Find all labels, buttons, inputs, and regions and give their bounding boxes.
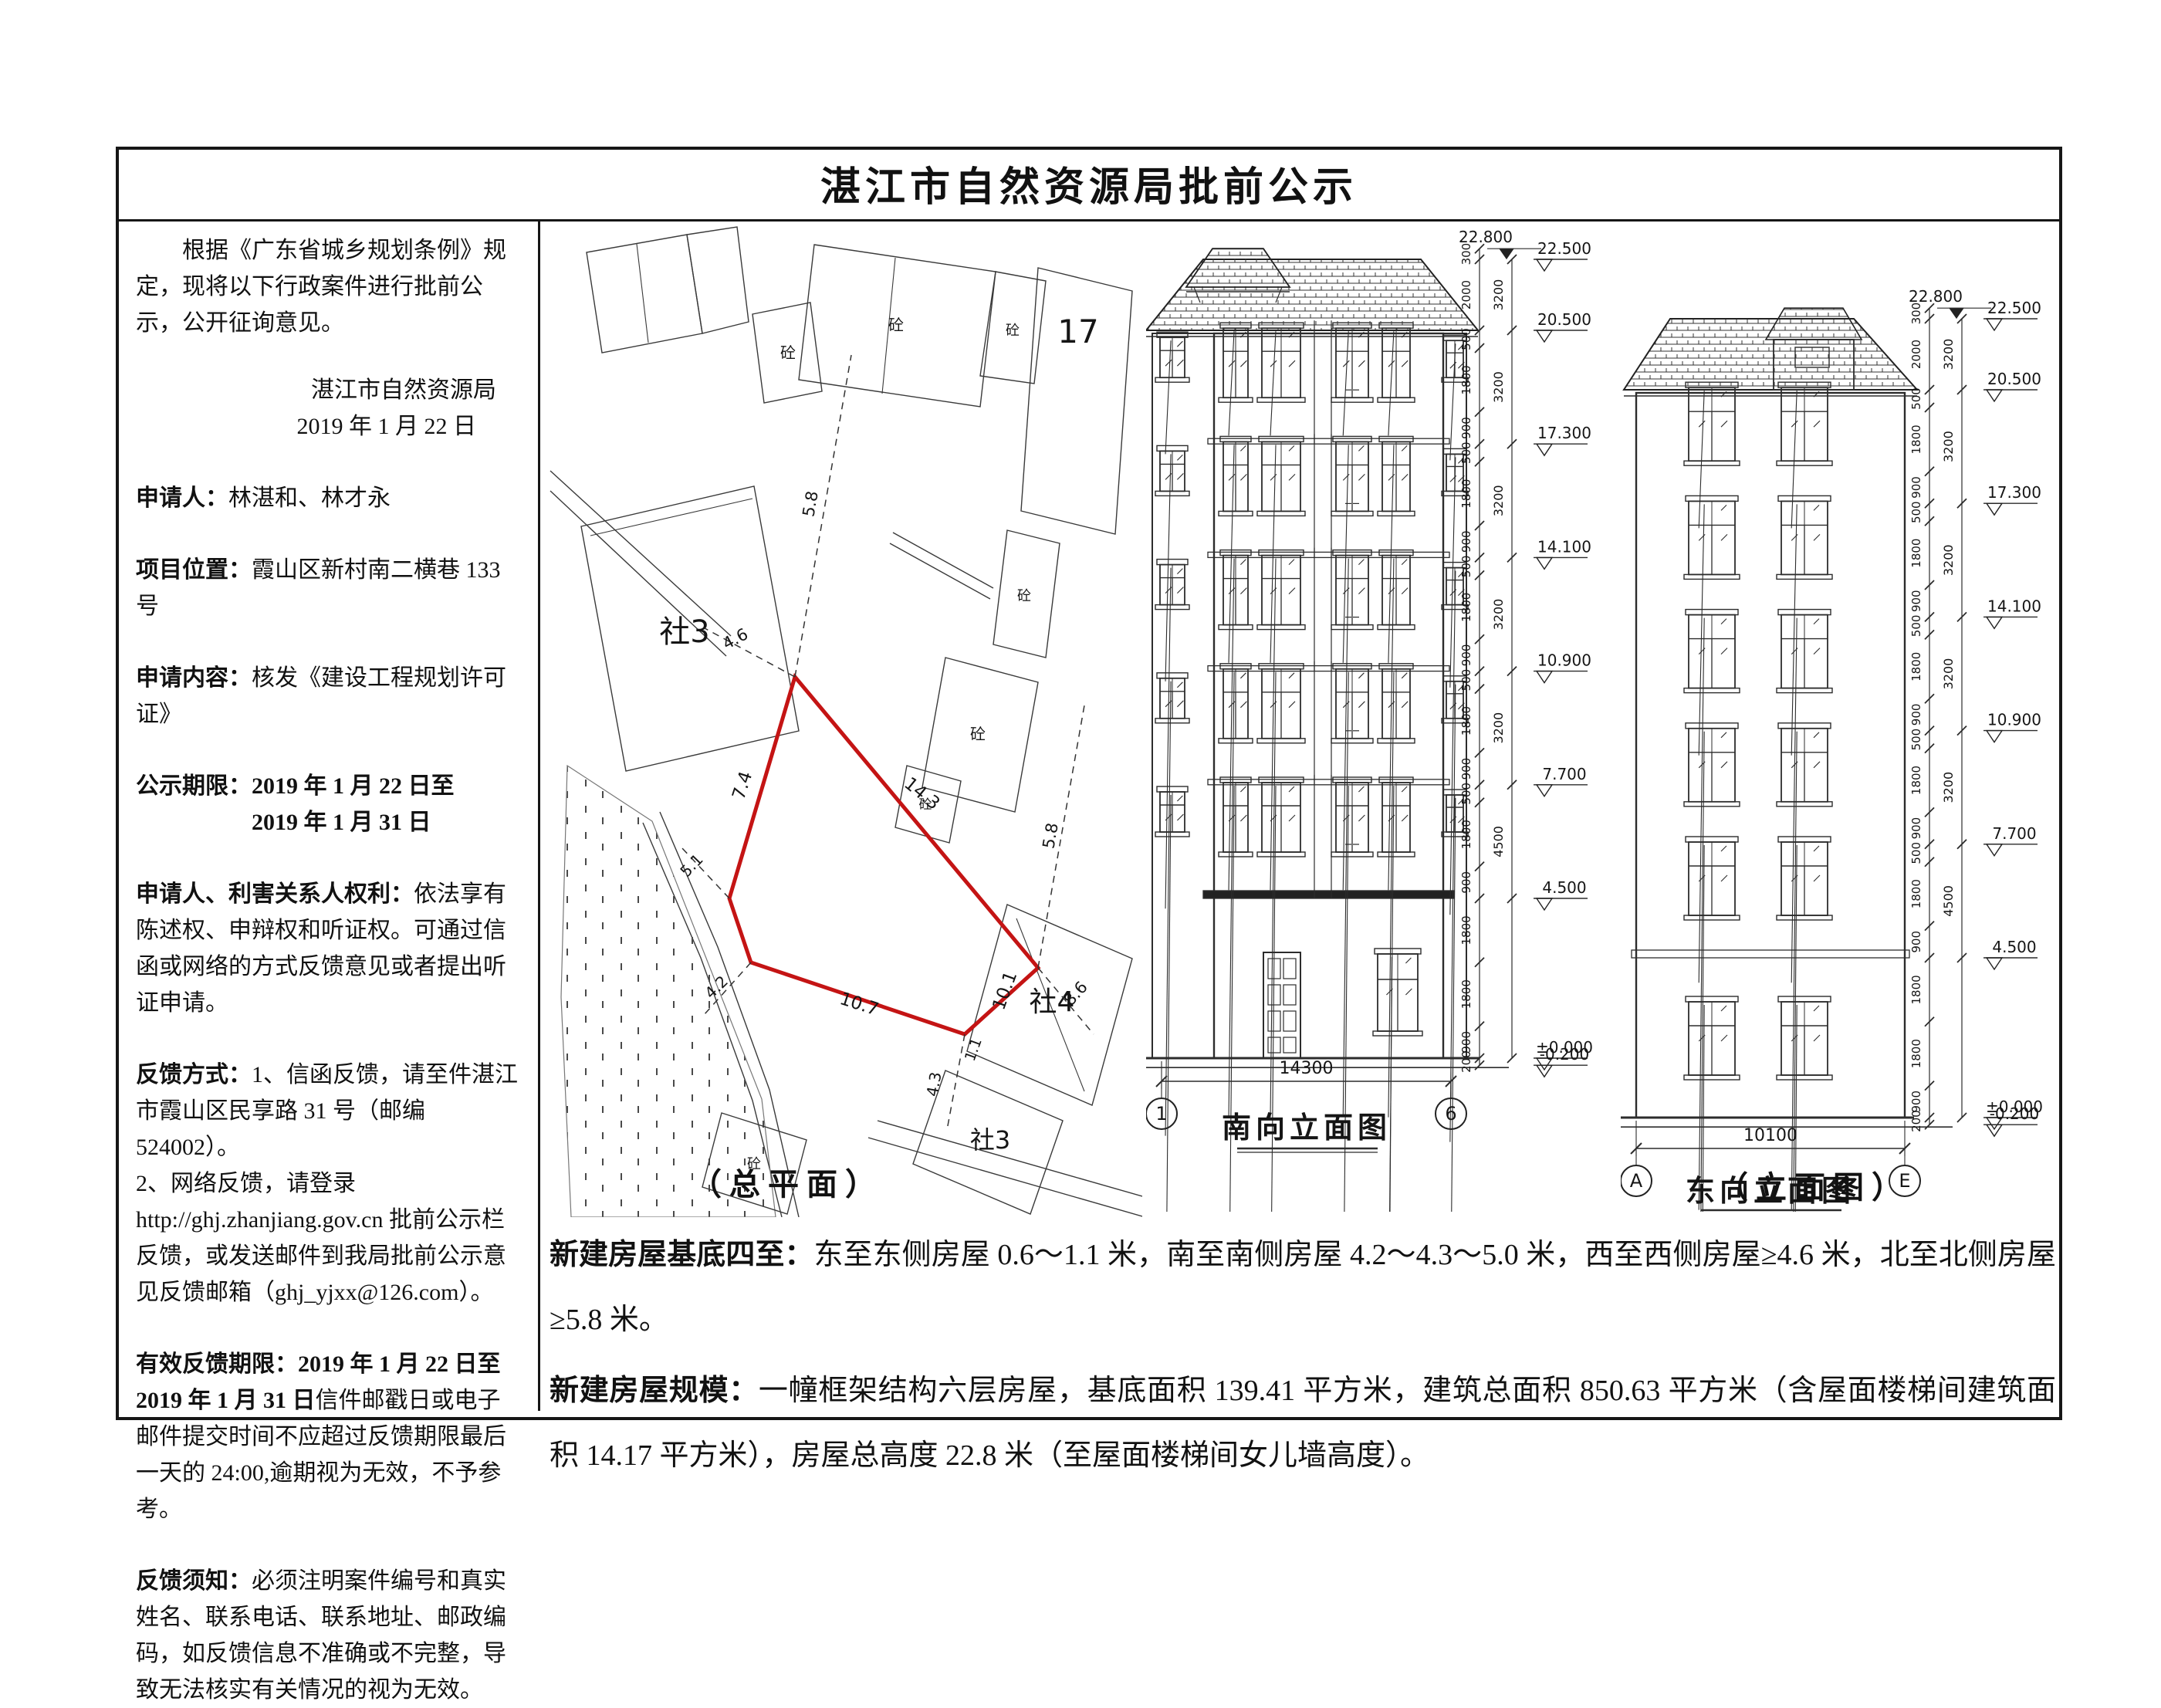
svg-text:3200: 3200 — [1491, 712, 1506, 744]
elevation-marks: 22.50020.50017.30014.10010.9007.7004.500… — [1909, 287, 2043, 1136]
svg-text:500: 500 — [1909, 729, 1923, 751]
feedback-url[interactable]: http://ghj.zhanjiang.gov.cn 批前公示栏反馈，或发送邮… — [136, 1207, 506, 1305]
plot-edge-dimensions: 14.37.410.110.71.1 — [729, 769, 1021, 1063]
svg-text:7.700: 7.700 — [1992, 824, 2036, 843]
svg-text:4.3: 4.3 — [923, 1070, 945, 1098]
svg-text:3200: 3200 — [1491, 485, 1506, 516]
svg-text:1: 1 — [1155, 1103, 1167, 1125]
svg-text:4.500: 4.500 — [1992, 938, 2036, 956]
cadastral-linework: 砼砼砼17砼砼砼社3社4社3砼 — [550, 227, 1142, 1217]
left-panel: 根据《广东省城乡规划条例》规定，现将以下行政案件进行批前公示，公开征询意见。 湛… — [119, 222, 540, 1411]
svg-text:200: 200 — [1909, 1110, 1923, 1132]
svg-text:900: 900 — [1459, 644, 1473, 667]
svg-text:10.900: 10.900 — [1537, 651, 1591, 670]
svg-text:500: 500 — [1909, 387, 1923, 410]
south-ground-floor — [1263, 949, 1422, 1212]
svg-text:-0.200: -0.200 — [1540, 1045, 1589, 1064]
svg-text:2000: 2000 — [1459, 280, 1473, 309]
width-dimension: 14300 — [1156, 1059, 1456, 1089]
svg-text:5.1: 5.1 — [676, 850, 706, 881]
svg-text:500: 500 — [1459, 556, 1473, 578]
svg-text:500: 500 — [1909, 615, 1923, 638]
svg-text:社3: 社3 — [659, 614, 709, 650]
svg-text:1800: 1800 — [1459, 365, 1473, 394]
feedback-paragraph: 反馈方式：1、信函反馈，请至件湛江市霞山区民享路 31 号（邮编 524002）… — [136, 1057, 522, 1311]
issuer-line: 湛江市自然资源局 — [136, 372, 522, 408]
east-elevation-drawing: 3002000500180090050018009005001800900500… — [1621, 255, 2072, 1212]
location-line: 项目位置：霞山区新村南二横巷 133 号 — [136, 552, 522, 624]
intro-paragraph: 根据《广东省城乡规划条例》规定，现将以下行政案件进行批前公示，公开征询意见。 — [136, 232, 522, 341]
east-floor-band — [1632, 950, 1909, 958]
issue-date-line: 2019 年 1 月 22 日 — [136, 408, 522, 445]
svg-text:5.8: 5.8 — [1039, 821, 1061, 850]
svg-text:10.7: 10.7 — [837, 989, 881, 1020]
svg-text:2000: 2000 — [1909, 340, 1923, 369]
svg-text:4500: 4500 — [1941, 885, 1956, 917]
svg-text:3200: 3200 — [1491, 371, 1506, 403]
svg-text:4.6: 4.6 — [719, 624, 751, 653]
svg-text:1800: 1800 — [1909, 539, 1923, 568]
width-dimension: 10100 — [1631, 1121, 1910, 1156]
svg-text:17.300: 17.300 — [1987, 483, 2041, 502]
extents-paragraph: 新建房屋基底四至：东至东侧房屋 0.6～1.1 米，南至南侧房屋 4.2～4.3… — [550, 1223, 2056, 1352]
svg-text:500: 500 — [1459, 441, 1473, 464]
svg-text:900: 900 — [1459, 758, 1473, 780]
svg-text:-0.200: -0.200 — [1990, 1104, 2039, 1123]
scanned-notice-page: { "page": { "title": "湛江市自然资源局批前公示" }, "… — [0, 0, 2161, 1544]
svg-text:22.500: 22.500 — [1987, 299, 2041, 317]
south-roof — [1146, 249, 1478, 337]
svg-text:500: 500 — [1459, 669, 1473, 692]
svg-text:22.800: 22.800 — [1459, 228, 1513, 246]
svg-text:6: 6 — [1445, 1103, 1456, 1125]
svg-text:4500: 4500 — [1491, 826, 1506, 857]
content-line: 申请内容：核发《建设工程规划许可证》 — [136, 660, 522, 732]
svg-text:砼: 砼 — [780, 343, 796, 362]
svg-text:1800: 1800 — [1459, 479, 1473, 509]
south-elevation-drawing: 3002000500180090050018009005001800900500… — [1146, 228, 1648, 1212]
svg-text:500: 500 — [1459, 328, 1473, 350]
svg-text:砼: 砼 — [1006, 323, 1020, 339]
svg-text:3200: 3200 — [1941, 772, 1956, 803]
svg-text:3200: 3200 — [1941, 544, 1956, 576]
site-plan-drawing: 砼砼砼17砼砼砼社3社4社3砼5.85.84.68.65.14.24.314.3… — [544, 225, 1142, 1217]
east-building — [1636, 393, 1905, 1118]
svg-text:砼: 砼 — [888, 316, 904, 334]
svg-text:5.8: 5.8 — [799, 489, 821, 518]
east-roof — [1624, 308, 1917, 396]
svg-text:14.100: 14.100 — [1537, 537, 1591, 556]
svg-text:900: 900 — [1909, 1091, 1923, 1113]
elevations-caption: （立面图） — [1686, 1162, 1941, 1207]
svg-text:500: 500 — [1909, 842, 1923, 864]
svg-text:14300: 14300 — [1280, 1059, 1334, 1078]
svg-text:3200: 3200 — [1491, 279, 1506, 311]
svg-text:22.800: 22.800 — [1909, 287, 1963, 306]
svg-text:7.700: 7.700 — [1542, 765, 1586, 783]
svg-text:1800: 1800 — [1459, 979, 1473, 1009]
svg-text:900: 900 — [1909, 704, 1923, 726]
svg-text:7.4: 7.4 — [729, 769, 756, 802]
svg-text:A: A — [1630, 1170, 1643, 1192]
svg-text:3200: 3200 — [1941, 658, 1956, 690]
svg-text:1800: 1800 — [1459, 593, 1473, 622]
dimension-chains: 3002000500180090050018009005001800900500… — [1909, 303, 1967, 1132]
svg-text:500: 500 — [1459, 783, 1473, 805]
svg-text:900: 900 — [1909, 817, 1923, 840]
bottom-text: 新建房屋基底四至：东至东侧房屋 0.6～1.1 米，南至南侧房屋 4.2～4.3… — [550, 1223, 2056, 1494]
svg-text:900: 900 — [1459, 871, 1473, 894]
svg-text:3200: 3200 — [1491, 599, 1506, 631]
svg-text:南向立面图: 南向立面图 — [1222, 1111, 1392, 1145]
valid-period-paragraph: 有效反馈期限：2019 年 1 月 22 日至 2019 年 1 月 31 日信… — [136, 1346, 522, 1527]
svg-text:砼: 砼 — [1017, 588, 1031, 604]
page-title: 湛江市自然资源局批前公示 — [116, 154, 2062, 212]
rights-paragraph: 申请人、利害关系人权利：依法享有陈述权、申辩权和听证权。可通过信函或网络的方式反… — [136, 876, 522, 1021]
svg-text:17: 17 — [1057, 313, 1098, 350]
svg-text:3200: 3200 — [1941, 431, 1956, 462]
svg-text:10.1: 10.1 — [989, 969, 1021, 1013]
svg-text:900: 900 — [1459, 1031, 1473, 1054]
svg-text:10100: 10100 — [1743, 1126, 1797, 1145]
svg-text:砼: 砼 — [970, 725, 986, 743]
south-building — [1152, 333, 1466, 1058]
svg-text:1800: 1800 — [1909, 424, 1923, 454]
svg-text:1800: 1800 — [1909, 1039, 1923, 1068]
svg-text:社3: 社3 — [970, 1125, 1010, 1155]
svg-text:900: 900 — [1459, 530, 1473, 553]
svg-text:1800: 1800 — [1909, 766, 1923, 795]
svg-text:1800: 1800 — [1459, 915, 1473, 945]
svg-text:500: 500 — [1909, 501, 1923, 523]
svg-text:10.900: 10.900 — [1987, 711, 2041, 729]
elevation-marks: 22.50020.50017.30014.10010.9007.7004.500… — [1459, 228, 1593, 1077]
svg-text:3200: 3200 — [1941, 339, 1956, 370]
applicant-line: 申请人：林湛和、林才永 — [136, 480, 522, 516]
svg-text:20.500: 20.500 — [1537, 310, 1591, 329]
svg-text:1800: 1800 — [1459, 706, 1473, 736]
svg-text:900: 900 — [1909, 590, 1923, 612]
svg-text:900: 900 — [1909, 476, 1923, 499]
svg-text:14.100: 14.100 — [1987, 597, 2041, 615]
svg-text:22.500: 22.500 — [1537, 239, 1591, 258]
svg-text:200: 200 — [1459, 1050, 1473, 1073]
svg-text:20.500: 20.500 — [1987, 370, 2041, 388]
svg-text:1800: 1800 — [1909, 652, 1923, 682]
svg-text:4.500: 4.500 — [1542, 878, 1586, 897]
plot-boundary — [729, 677, 1038, 1034]
svg-text:1800: 1800 — [1459, 820, 1473, 849]
site-plan-caption: （总平面） — [660, 1159, 915, 1204]
svg-text:1800: 1800 — [1909, 879, 1923, 908]
notice-paragraph: 反馈须知：必须注明案件编号和真实姓名、联系电话、联系地址、邮政编码，如反馈信息不… — [136, 1563, 522, 1708]
svg-text:1800: 1800 — [1909, 975, 1923, 1004]
east-windows — [1684, 382, 1832, 1212]
svg-text:900: 900 — [1459, 417, 1473, 439]
svg-text:900: 900 — [1909, 931, 1923, 953]
period-lines: 公示期限：2019 年 1 月 22 日至2019 年 1 月 31 日 — [136, 768, 522, 840]
svg-text:1.1: 1.1 — [962, 1036, 986, 1064]
scale-paragraph: 新建房屋规模：一幢框架结构六层房屋，基底面积 139.41 平方米，建筑总面积 … — [550, 1358, 2056, 1488]
svg-text:17.300: 17.300 — [1537, 424, 1591, 442]
dimension-chains: 3002000500180090050018009005001800900500… — [1459, 243, 1517, 1073]
